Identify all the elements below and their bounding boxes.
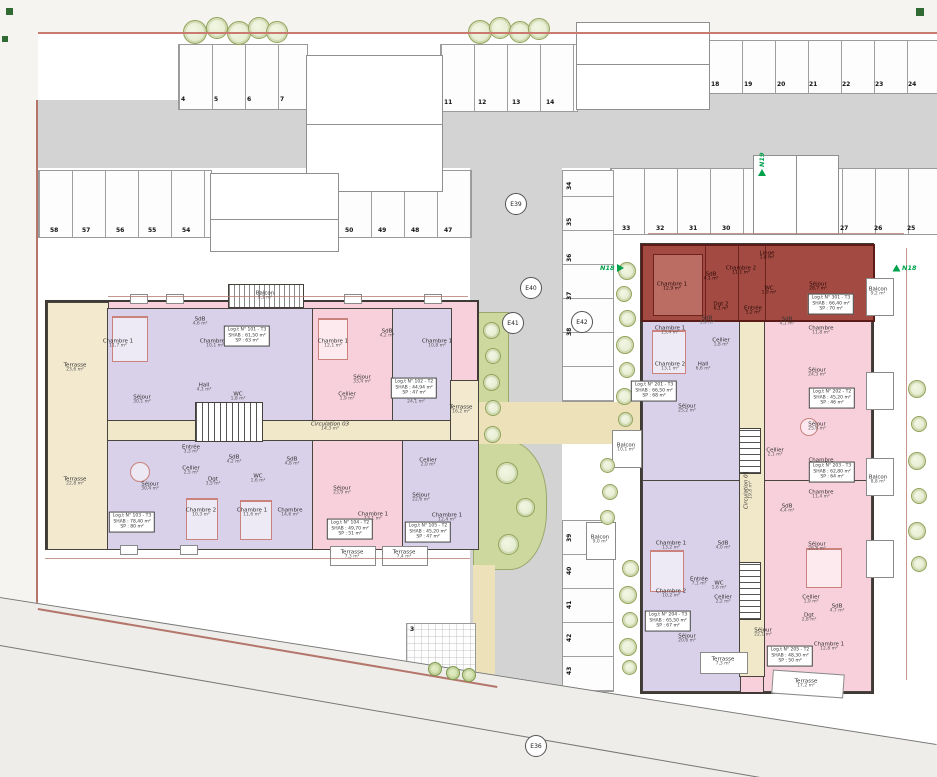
unit-label-line: Log.t N° 204 - T3 <box>649 613 687 619</box>
room-label: Séjour30,4 m² <box>141 482 159 493</box>
unit-label-box: Log.t N° 103 - T3SHAB : 78,40 m²SP : 80 … <box>109 512 155 533</box>
corridor <box>107 420 479 442</box>
room-area: 4,0 m² <box>716 547 731 552</box>
room-area: 28,7 m² <box>809 288 827 293</box>
room-area: 2,2 m² <box>714 601 731 606</box>
unit-label-line: SP : 64 m² <box>813 475 851 481</box>
room-area: 2,8 m² <box>802 619 817 624</box>
unit-label-line: Log.t N° 103 - T3 <box>113 514 151 520</box>
parking-space-number: 42 <box>566 634 573 642</box>
unit-label-line: Log.t N° 104 - T2 <box>331 521 369 527</box>
survey-marker: E40 <box>519 276 543 300</box>
balcony-label: Balcon10,1 m² <box>617 443 636 454</box>
room-label: Séjour24,3 m² <box>808 368 826 379</box>
parking-space-number: 18 <box>711 81 719 88</box>
flag-icon <box>758 169 766 176</box>
parking-space-number: 21 <box>809 81 817 88</box>
room-area: 7,3 m² <box>712 663 735 668</box>
room-label: WC1,6 m² <box>712 581 727 592</box>
tree-icon <box>483 322 500 339</box>
unit-label-line: SP : 68 m² <box>635 394 673 400</box>
unit-label-line: SP : 50 m² <box>771 659 809 665</box>
room-label: WC1,6 m² <box>251 474 266 485</box>
level-flag: N18 <box>893 264 917 272</box>
room-label: Dgt2,8 m² <box>802 613 817 624</box>
parking-space-number: 19 <box>744 81 752 88</box>
parking-space-number: 23 <box>875 81 883 88</box>
staircase <box>195 402 263 442</box>
room-label: Cellier2,1 m² <box>766 448 783 459</box>
room-label: Cellier2,0 m² <box>419 458 436 469</box>
room-label: Chambre 113,4 m² <box>655 326 685 337</box>
unit-label-line: SP : 47 m² <box>409 535 447 541</box>
building-divider <box>577 64 709 65</box>
terrace-label: Terrasse16,2 m² <box>450 405 473 416</box>
shrub-icon <box>462 668 476 682</box>
level-flag: N18 <box>600 264 624 272</box>
unit-label-line: Log.t N° 203 - T3 <box>813 464 851 470</box>
room-label: Cellier1,9 m² <box>802 595 819 606</box>
room-label: Hall6,6 m² <box>696 362 711 373</box>
wall <box>705 246 706 320</box>
room-area: 1,8 m² <box>760 257 775 262</box>
parking-space-number: 40 <box>566 567 573 575</box>
room-area: 10,8 m² <box>422 345 452 350</box>
room-area: 24,1 m² <box>407 401 425 406</box>
parking-space-number: 3 <box>410 626 414 633</box>
terrace-label: Terrasse7,3 m² <box>712 657 735 668</box>
parking-group-top-mid <box>440 44 578 112</box>
tree-icon <box>600 510 615 525</box>
flag-label: N18 <box>600 264 615 272</box>
parking-space-number: 43 <box>566 667 573 675</box>
staircase <box>739 562 761 620</box>
room-label: Chambre 112,8 m² <box>814 642 844 653</box>
unit-label-line: SP : 70 m² <box>812 307 850 313</box>
room-area: 2,0 m² <box>419 464 436 469</box>
tree-icon <box>911 556 927 572</box>
table-icon <box>130 462 150 482</box>
unit-label-box: Log.t N° 101 - T3SHAB : 61,50 m²SP : 63 … <box>224 326 270 347</box>
room-area: 1,9 m² <box>802 601 819 606</box>
tree-icon <box>516 498 535 517</box>
room-area: 4,4 m² <box>780 510 795 515</box>
room-area: 4,7 m² <box>830 610 845 615</box>
room-area: 6,1 m² <box>713 308 728 313</box>
terrace-column <box>47 302 109 550</box>
room-area: 14,6 m² <box>277 514 302 519</box>
room-area: 33,4 m² <box>353 381 371 386</box>
unit-label-box: Log.t N° 202 - T2SHAB : 45,20 m²SP : 46 … <box>809 388 855 409</box>
shrub-icon <box>428 662 442 676</box>
existing-building <box>210 173 339 252</box>
tree-icon <box>485 348 501 364</box>
room-area: 4,8 m² <box>285 463 300 468</box>
parking-space-number: 50 <box>345 227 353 234</box>
room-area: 24,3 m² <box>808 374 826 379</box>
room-area: 11,4 m² <box>808 496 833 501</box>
parking-space-number: 56 <box>116 227 124 234</box>
room-label: Séjour26,8 m² <box>808 542 826 553</box>
parking-space-number: 57 <box>82 227 90 234</box>
marker-label: E40 <box>520 277 542 299</box>
unit-label-box: Log.t N° 105 - T2SHAB : 45,20 m²SP : 47 … <box>405 522 451 543</box>
room-label: SdB4,2 m² <box>380 329 395 340</box>
bed-icon <box>650 550 684 592</box>
tree-icon <box>619 362 635 378</box>
room-area: 25,2 m² <box>678 410 696 415</box>
room-area: 4,1 m² <box>197 389 212 394</box>
entry-step <box>120 545 138 555</box>
property-boundary-left <box>36 100 38 640</box>
tree-icon <box>618 412 633 427</box>
room-area: 13,2 m² <box>656 547 686 552</box>
terrace-label: Terrasse23,6 m² <box>64 363 87 374</box>
unit-label-box: Log.t N° 203 - T3SHAB : 62,80 m²SP : 64 … <box>809 462 855 483</box>
tree-icon <box>602 484 618 500</box>
boundary-mark-icon <box>2 36 8 42</box>
corridor-label: Circulation 0119,8 m² <box>744 471 755 509</box>
parking-space-number: 20 <box>777 81 785 88</box>
tree-icon <box>908 522 926 540</box>
unit-label-line: Log.t N° 101 - T3 <box>228 328 266 334</box>
room-label: Dgt 26,1 m² <box>713 302 728 313</box>
terrace-label: Terrasse17,2 m² <box>795 679 818 690</box>
tree-icon <box>600 458 615 473</box>
bed-icon <box>186 498 218 540</box>
parking-space-number: 7 <box>280 96 284 103</box>
room-area: 10,3 m² <box>186 514 216 519</box>
survey-marker: E39 <box>504 192 528 216</box>
corridor-label: Circulation 0314,3 m² <box>311 422 349 433</box>
room-area: 12,1 m² <box>318 345 348 350</box>
tree-icon <box>911 416 927 432</box>
unit-label-line: Log.t N° 301 - T3 <box>812 296 850 302</box>
tree-icon <box>489 17 511 39</box>
room-area: 1,6 m² <box>251 480 266 485</box>
parking-space-number: 34 <box>566 182 573 190</box>
existing-building <box>306 55 443 192</box>
parking-space-number: 4 <box>181 96 185 103</box>
parking-group-top-right <box>708 40 937 94</box>
room-area: 4,1 m² <box>780 323 795 328</box>
room-label: Séjour28,7 m² <box>809 282 827 293</box>
parking-space-number: 14 <box>546 99 554 106</box>
room-label: SdB4,1 m² <box>704 272 719 283</box>
room-area: 2,5 m² <box>182 472 199 477</box>
room-label: Linge1,8 m² <box>760 251 775 262</box>
parking-space-number: 24 <box>908 81 916 88</box>
wall <box>738 246 739 320</box>
room-area: 10,2 m² <box>656 595 686 600</box>
room-label: Entrée5,2 m² <box>744 306 762 317</box>
marker-label: E42 <box>571 311 593 333</box>
marker-label: E36 <box>525 735 547 757</box>
room-area: 2,1 m² <box>766 454 783 459</box>
room-area: 8,8 m² <box>869 481 888 486</box>
dimension-line <box>108 296 468 297</box>
room-label: SdB4,4 m² <box>780 504 795 515</box>
parking-space-number: 47 <box>444 227 452 234</box>
room-label: Chambre11,4 m² <box>808 490 833 501</box>
room-label: Chambre 112,1 m² <box>318 339 348 350</box>
room-label: Séjour30,1 m² <box>133 395 151 406</box>
parking-space-number: 31 <box>689 225 697 232</box>
tree-icon <box>619 638 637 656</box>
tree-icon <box>206 17 228 39</box>
balcony-label: Balcon9,2 m² <box>869 287 888 298</box>
room-label: SdB4,0 m² <box>716 541 731 552</box>
room-area: 1,8 m² <box>231 398 246 403</box>
building-divider <box>307 124 442 125</box>
room-area: 5,2 m² <box>744 312 762 317</box>
parking-space-number: 48 <box>411 227 419 234</box>
room-area: 14,3 m² <box>311 428 349 433</box>
parking-space-number: 27 <box>840 225 848 232</box>
tree-icon <box>911 488 927 504</box>
shrub-icon <box>446 666 460 680</box>
terrace-label: Terrasse7,4 m² <box>393 550 416 561</box>
room-label: SdB4,1 m² <box>780 317 795 328</box>
balcony-label: Balcon8,8 m² <box>869 475 888 486</box>
room-label: Chambre 113,2 m² <box>656 541 686 552</box>
room-area: 9,0 m² <box>591 541 610 546</box>
room-label: Chambre14,6 m² <box>277 508 302 519</box>
dimension-line <box>906 248 907 680</box>
room-label: Séjour23,9 m² <box>333 486 351 497</box>
room-label: SdB4,8 m² <box>285 457 300 468</box>
tree-icon <box>619 310 636 327</box>
room-area: 11,7 m² <box>103 345 133 350</box>
room-area: 9,2 m² <box>869 293 888 298</box>
room-area: 9,1 m² <box>256 297 275 302</box>
room-label: Chambre 110,8 m² <box>422 339 452 350</box>
room-label: Chambre 211,1 m² <box>726 266 756 277</box>
building-divider <box>211 219 338 220</box>
room-area: 30,4 m² <box>141 488 159 493</box>
room-area: 4,6 m² <box>193 323 208 328</box>
flag-icon <box>617 264 624 272</box>
parking-space-number: 54 <box>182 227 190 234</box>
room-area: 11,8 m² <box>808 332 833 337</box>
room-label: SdB4,6 m² <box>193 317 208 328</box>
unit-label-box: Log.t N° 201 - T3SHAB : 66,50 m²SP : 68 … <box>631 381 677 402</box>
room-area: 23,9 m² <box>333 492 351 497</box>
room-area: 3,9 m² <box>700 322 715 327</box>
parking-space-number: 6 <box>247 96 251 103</box>
room-area: 1,9 m² <box>762 292 777 297</box>
terrace-label: Terrasse7,3 m² <box>341 550 364 561</box>
unit-label-line: Log.t N° 202 - T2 <box>813 390 851 396</box>
room-area: 20,6 m² <box>678 640 696 645</box>
room-label: Séjour20,6 m² <box>678 634 696 645</box>
room-area: 12,8 m² <box>814 648 844 653</box>
unit-label-line: Log.t N° 105 - T2 <box>409 524 447 530</box>
unit-label-line: SP : 67 m² <box>649 624 687 630</box>
room-area: 6,6 m² <box>696 368 711 373</box>
tree-icon <box>485 400 501 416</box>
parking-space-number: 26 <box>874 225 882 232</box>
balcony-box <box>866 540 894 578</box>
room-area: 4,2 m² <box>227 461 242 466</box>
room-area: 7,1 m² <box>690 583 708 588</box>
parking-space-number: 37 <box>566 292 573 300</box>
balcony-box <box>866 372 894 410</box>
parking-space-number: 22 <box>842 81 850 88</box>
room-area: 1,9 m² <box>338 398 355 403</box>
tree-icon <box>528 18 550 40</box>
bed-icon <box>806 548 842 588</box>
room-area: 1,8 m² <box>712 344 729 349</box>
room-label: Entrée7,1 m² <box>690 577 708 588</box>
room-area: 16,2 m² <box>450 411 473 416</box>
room-area: 4,2 m² <box>380 335 395 340</box>
level-flag: N19 <box>758 153 766 177</box>
bed-icon <box>240 500 272 540</box>
dimension-line <box>648 233 904 234</box>
room-label: Séjour25,6 m² <box>808 422 826 433</box>
parking-space-number: 33 <box>622 225 630 232</box>
existing-building <box>576 22 710 110</box>
parking-space-number: 32 <box>656 225 664 232</box>
parking-space-number: 12 <box>478 99 486 106</box>
survey-marker: E41 <box>501 311 525 335</box>
property-boundary-top <box>38 32 937 34</box>
room-label: Dgt3,5 m² <box>206 477 221 488</box>
tree-icon <box>616 286 632 302</box>
room-area: 17,2 m² <box>795 685 818 690</box>
tree-icon <box>616 336 634 354</box>
room-area: 7,4 m² <box>393 556 416 561</box>
parking-space-number: 36 <box>566 254 573 262</box>
balcony-label: Balcon9,1 m² <box>256 291 275 302</box>
room-label: Séjour22,6 m² <box>412 493 430 504</box>
room-label: Séjour22,1 m² <box>754 628 772 639</box>
parking-space-number: 55 <box>148 227 156 234</box>
unit-label-box: Log.t N° 102 - T2SHAB : 44,94 m²SP : 47 … <box>391 378 437 399</box>
room-area: 3,5 m² <box>206 483 221 488</box>
room-area: 1,6 m² <box>712 587 727 592</box>
room-label: Hall4,1 m² <box>197 383 212 394</box>
room-area: 22,1 m² <box>754 634 772 639</box>
tree-icon <box>483 374 500 391</box>
tree-icon <box>496 462 518 484</box>
room-label: WC1,8 m² <box>231 392 246 403</box>
building-divider <box>796 156 797 234</box>
room-area: 23,6 m² <box>64 369 87 374</box>
parking-space-number: 39 <box>566 534 573 542</box>
unit-label-line: Log.t N° 201 - T3 <box>635 383 673 389</box>
tree-icon <box>622 612 638 628</box>
room-area: 11,1 m² <box>726 272 756 277</box>
room-label: Chambre11,8 m² <box>808 326 833 337</box>
room-area: 12,9 m² <box>657 288 687 293</box>
parking-space-number: 49 <box>378 227 386 234</box>
unit-label-box: Log.t N° 301 - T3SHAB : 66,40 m²SP : 70 … <box>808 294 854 315</box>
parking-space-number: 13 <box>512 99 520 106</box>
room-area: 22,6 m² <box>412 499 430 504</box>
room-label: Chambre 111,6 m² <box>237 508 267 519</box>
room-label: WC1,9 m² <box>762 286 777 297</box>
tree-icon <box>908 452 926 470</box>
room-area: 10,1 m² <box>617 449 636 454</box>
unit-label-box: Log.t N° 205 - T2SHAB : 48,30 m²SP : 50 … <box>767 646 813 667</box>
room-area: 22,8 m² <box>64 483 87 488</box>
unit-label-box: Log.t N° 204 - T3SHAB : 65,50 m²SP : 67 … <box>645 611 691 632</box>
parking-space-number: 5 <box>214 96 218 103</box>
parking-space-number: 41 <box>566 601 573 609</box>
flag-icon <box>893 265 901 272</box>
room-area: 3,3 m² <box>182 451 200 456</box>
room-label: Chambre 210,2 m² <box>656 589 686 600</box>
flag-label: N18 <box>902 264 917 272</box>
tree-icon <box>622 560 639 577</box>
parking-space-number: 25 <box>907 225 915 232</box>
parking-space-number: 30 <box>722 225 730 232</box>
room-label: Cellier2,2 m² <box>714 595 731 606</box>
unit-label-line: Log.t N° 205 - T2 <box>771 648 809 654</box>
boundary-mark-icon <box>916 8 924 16</box>
room-label: Cellier2,5 m² <box>182 466 199 477</box>
unit-label-line: SP : 80 m² <box>113 525 151 531</box>
unit-label-line: SP : 51 m² <box>331 532 369 538</box>
tree-icon <box>498 534 519 555</box>
room-label: Cellier1,9 m² <box>338 392 355 403</box>
tree-icon <box>619 586 637 604</box>
staircase <box>739 428 761 474</box>
room-area: 25,6 m² <box>808 428 826 433</box>
room-area: 4,1 m² <box>704 278 719 283</box>
room-area: 26,8 m² <box>808 548 826 553</box>
tree-icon <box>484 426 501 443</box>
unit-label-line: SP : 63 m² <box>228 339 266 345</box>
unit-label-line: SP : 46 m² <box>813 401 851 407</box>
room-area: 11,6 m² <box>237 514 267 519</box>
parking-column-upper <box>562 170 614 402</box>
parking-space-number: 35 <box>566 218 573 226</box>
unit-label-line: Log.t N° 102 - T2 <box>395 380 433 386</box>
tree-icon <box>908 380 926 398</box>
parking-space-number: 58 <box>50 227 58 234</box>
room-label: SdB4,2 m² <box>227 455 242 466</box>
site-plan: 4 5 6 7 11 12 13 14 18 19 20 21 22 23 24… <box>0 0 937 777</box>
parking-group-top-left <box>178 44 308 110</box>
parking-space-number: 11 <box>444 99 452 106</box>
flag-label: N19 <box>758 153 766 168</box>
terrace-label: Terrasse22,8 m² <box>64 477 87 488</box>
survey-marker: E36 <box>524 734 548 758</box>
unit-label-box: Log.t N° 104 - T2SHAB : 49,70 m²SP : 51 … <box>327 519 373 540</box>
entry-step <box>180 545 198 555</box>
balcony-label: Balcon9,0 m² <box>591 535 610 546</box>
room-label: Cellier1,8 m² <box>712 338 729 349</box>
room-label: Séjour25,2 m² <box>678 404 696 415</box>
tree-icon <box>622 660 637 675</box>
room-area: 7,3 m² <box>341 556 364 561</box>
room-area: 13,1 m² <box>655 368 685 373</box>
room-area: 30,1 m² <box>133 401 151 406</box>
room-label: Séjour33,4 m² <box>353 375 371 386</box>
room-label: SdB3,9 m² <box>700 316 715 327</box>
unit-label-line: SP : 47 m² <box>395 391 433 397</box>
room-label: Chambre 111,7 m² <box>103 339 133 350</box>
room-label: Chambre 112,9 m² <box>657 282 687 293</box>
survey-marker: E42 <box>570 310 594 334</box>
room-label: Chambre 210,3 m² <box>186 508 216 519</box>
boundary-mark-icon <box>6 8 13 15</box>
room-label: Chambre 213,1 m² <box>655 362 685 373</box>
room-area: 19,8 m² <box>750 471 755 509</box>
